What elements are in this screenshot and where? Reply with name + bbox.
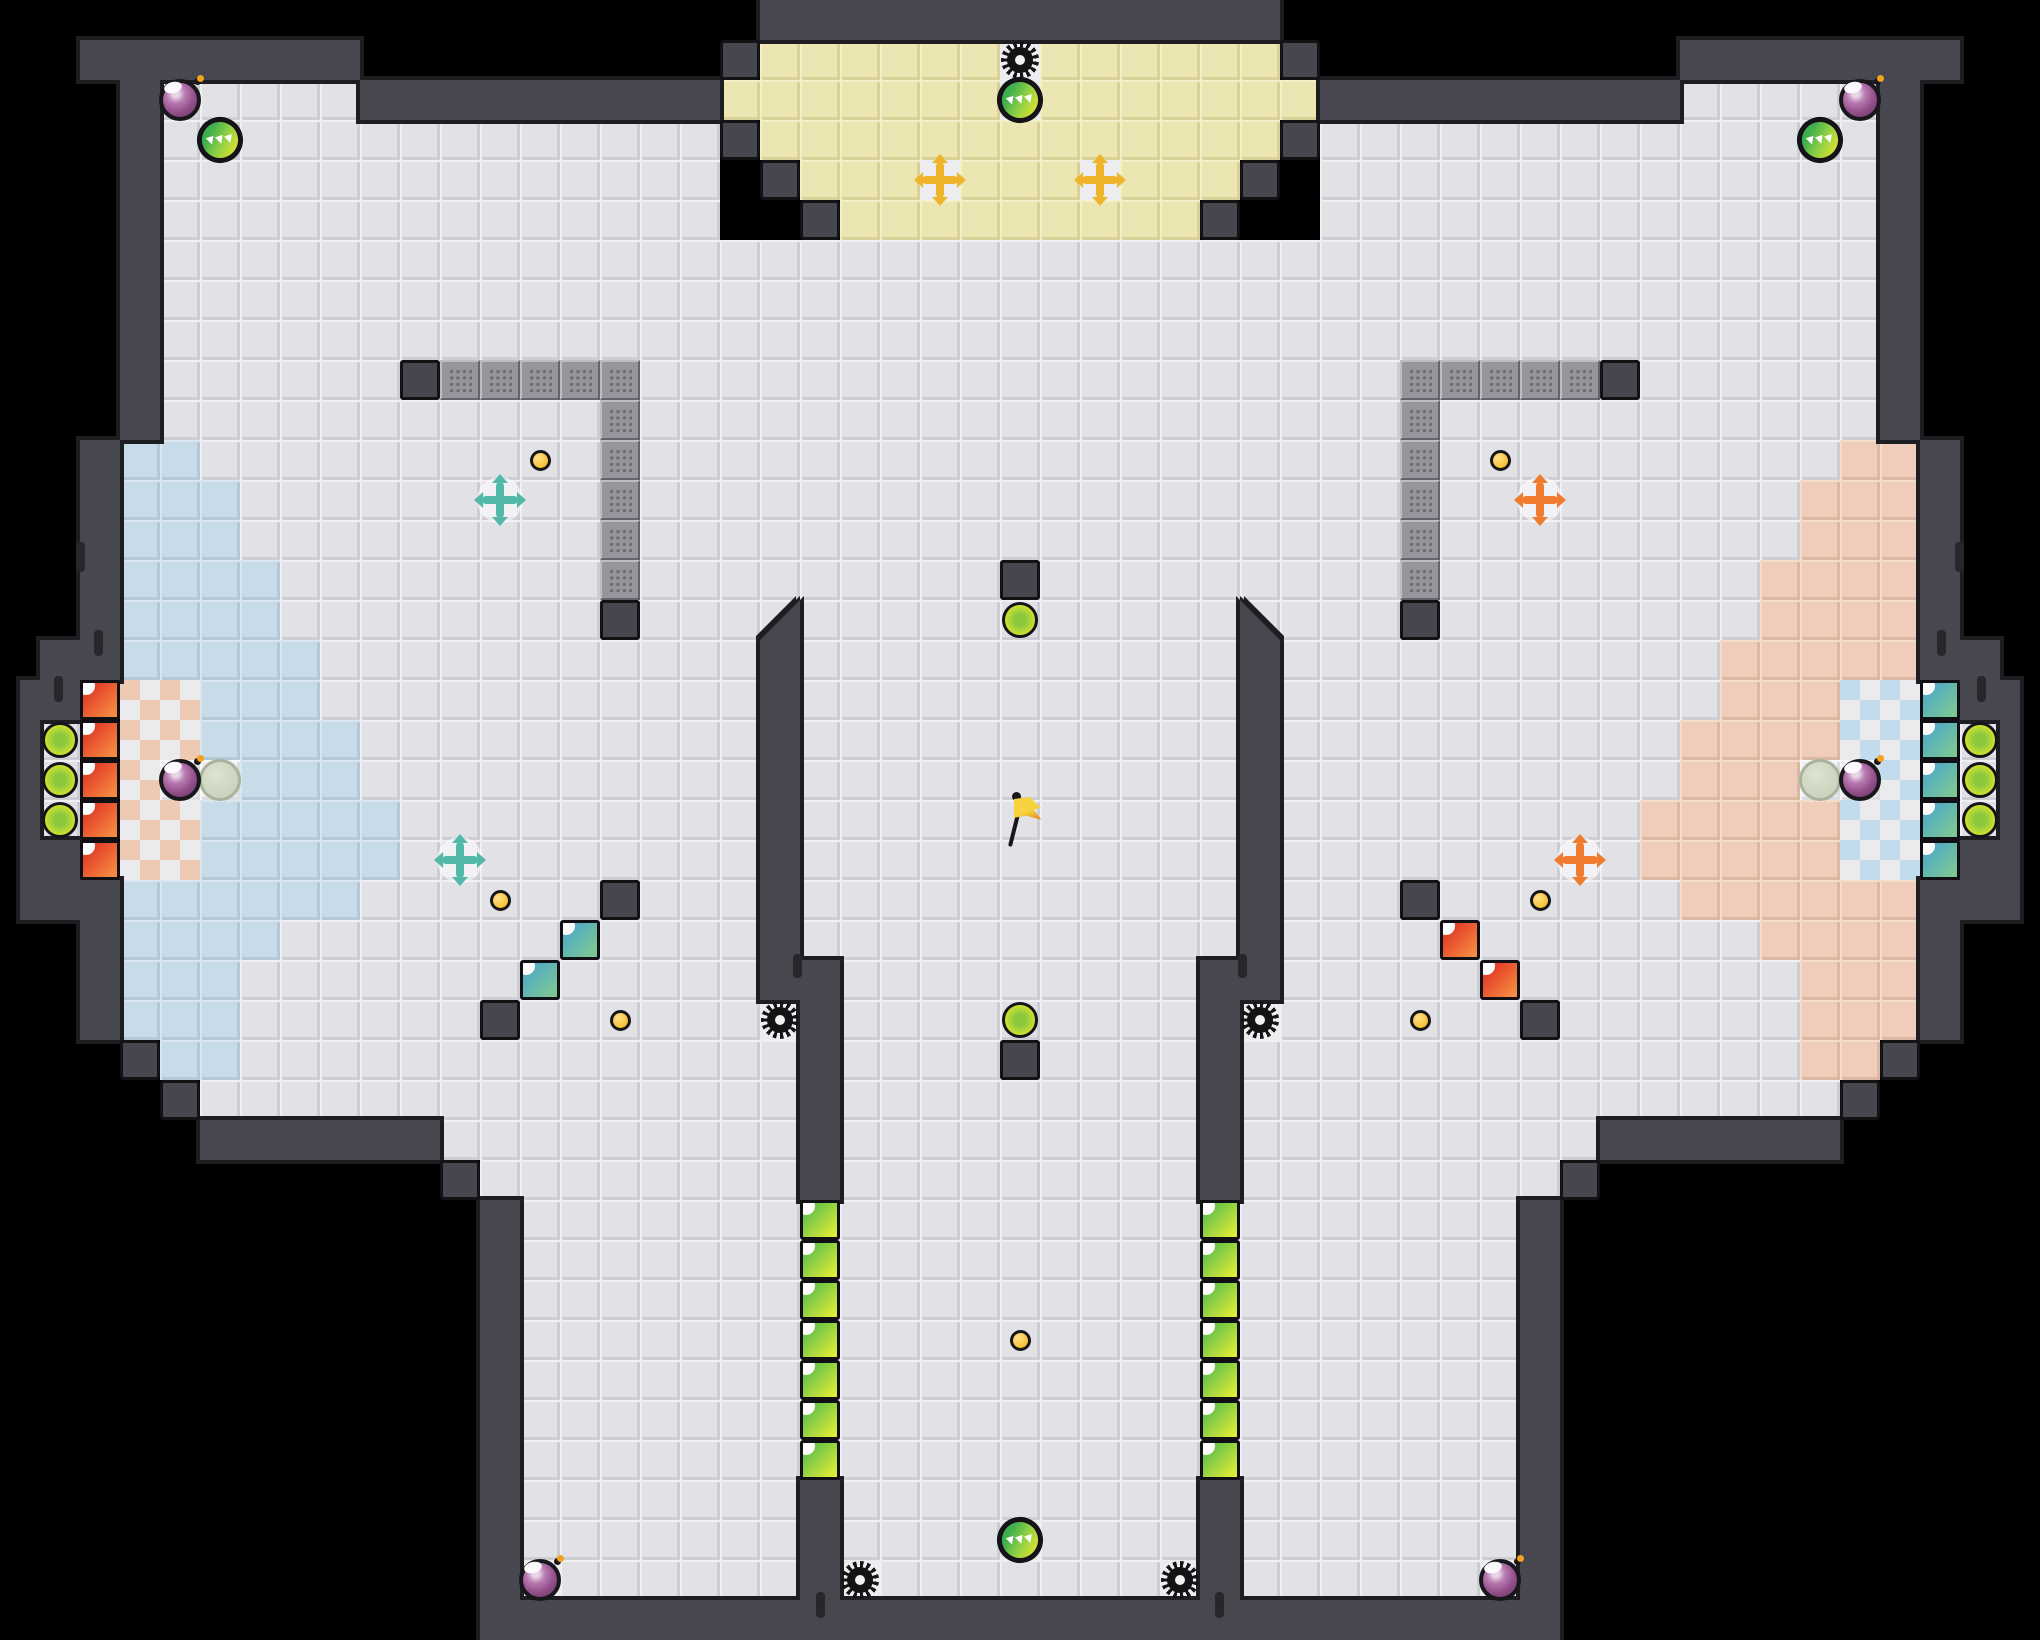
boost-pickup-orb	[991, 1511, 1049, 1569]
game-map[interactable]	[0, 0, 2040, 1640]
boost-pickup-orb	[191, 111, 249, 169]
saw-blade-icon	[761, 1001, 799, 1039]
bomb-pickup	[1479, 1559, 1521, 1601]
bomb-pickup	[1839, 79, 1881, 121]
saw-blade-icon	[841, 1561, 879, 1599]
coin-dot	[490, 890, 511, 911]
object-layer	[0, 0, 2040, 1640]
move-cross-icon-gold	[1077, 157, 1123, 203]
energy-orb	[1002, 1002, 1038, 1038]
move-cross-icon-orange	[1557, 837, 1603, 883]
move-cross-icon-teal	[437, 837, 483, 883]
saw-blade-icon	[1241, 1001, 1279, 1039]
coin-dot	[1490, 450, 1511, 471]
bomb-pickup	[519, 1559, 561, 1601]
move-cross-icon-gold	[917, 157, 963, 203]
saw-blade-icon	[1001, 41, 1039, 79]
bomb-pickup	[1839, 759, 1881, 801]
energy-orb	[1962, 722, 1998, 758]
spawn-circle	[199, 759, 241, 801]
bomb-pickup	[159, 79, 201, 121]
boost-pickup-orb	[1791, 111, 1849, 169]
coin-dot	[530, 450, 551, 471]
coin-dot	[1530, 890, 1551, 911]
energy-orb	[1962, 802, 1998, 838]
energy-orb	[1002, 602, 1038, 638]
flag-marker	[992, 792, 1044, 850]
coin-dot	[1410, 1010, 1431, 1031]
energy-orb	[42, 722, 78, 758]
energy-orb	[42, 802, 78, 838]
energy-orb	[42, 762, 78, 798]
coin-dot	[610, 1010, 631, 1031]
boost-pickup-orb	[991, 71, 1049, 129]
saw-blade-icon	[1161, 1561, 1199, 1599]
coin-dot	[1010, 1330, 1031, 1351]
bomb-pickup	[159, 759, 201, 801]
energy-orb	[1962, 762, 1998, 798]
move-cross-icon-teal	[477, 477, 523, 523]
spawn-circle	[1799, 759, 1841, 801]
move-cross-icon-orange	[1517, 477, 1563, 523]
